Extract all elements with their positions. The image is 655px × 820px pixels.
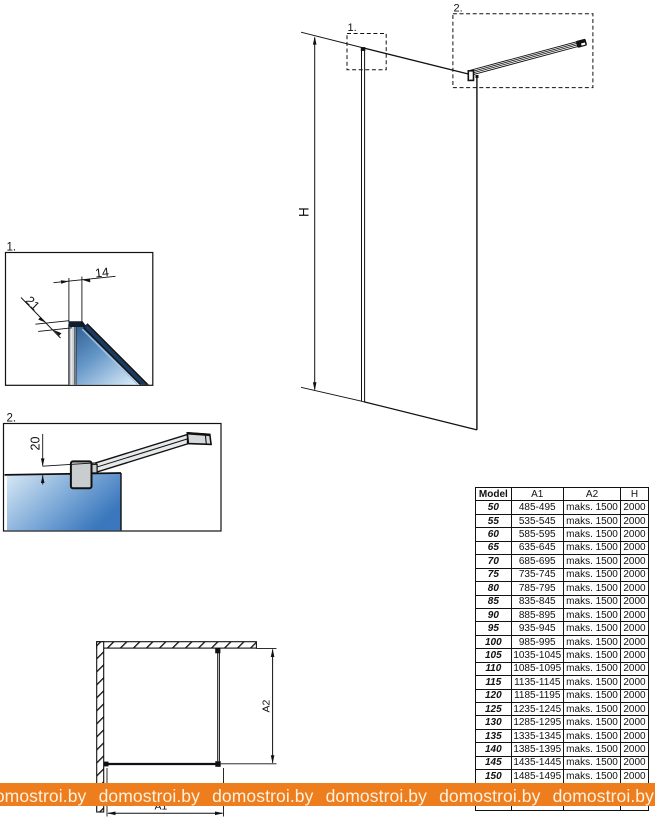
svg-text:A2: A2: [261, 699, 273, 712]
svg-text:1.: 1.: [7, 242, 17, 254]
svg-text:1.: 1.: [348, 22, 357, 34]
svg-text:2.: 2.: [7, 413, 17, 425]
svg-text:21: 21: [23, 294, 43, 314]
svg-text:20: 20: [29, 437, 43, 451]
svg-text:H: H: [297, 207, 312, 217]
svg-text:14: 14: [94, 265, 109, 280]
svg-text:2.: 2.: [454, 3, 463, 15]
